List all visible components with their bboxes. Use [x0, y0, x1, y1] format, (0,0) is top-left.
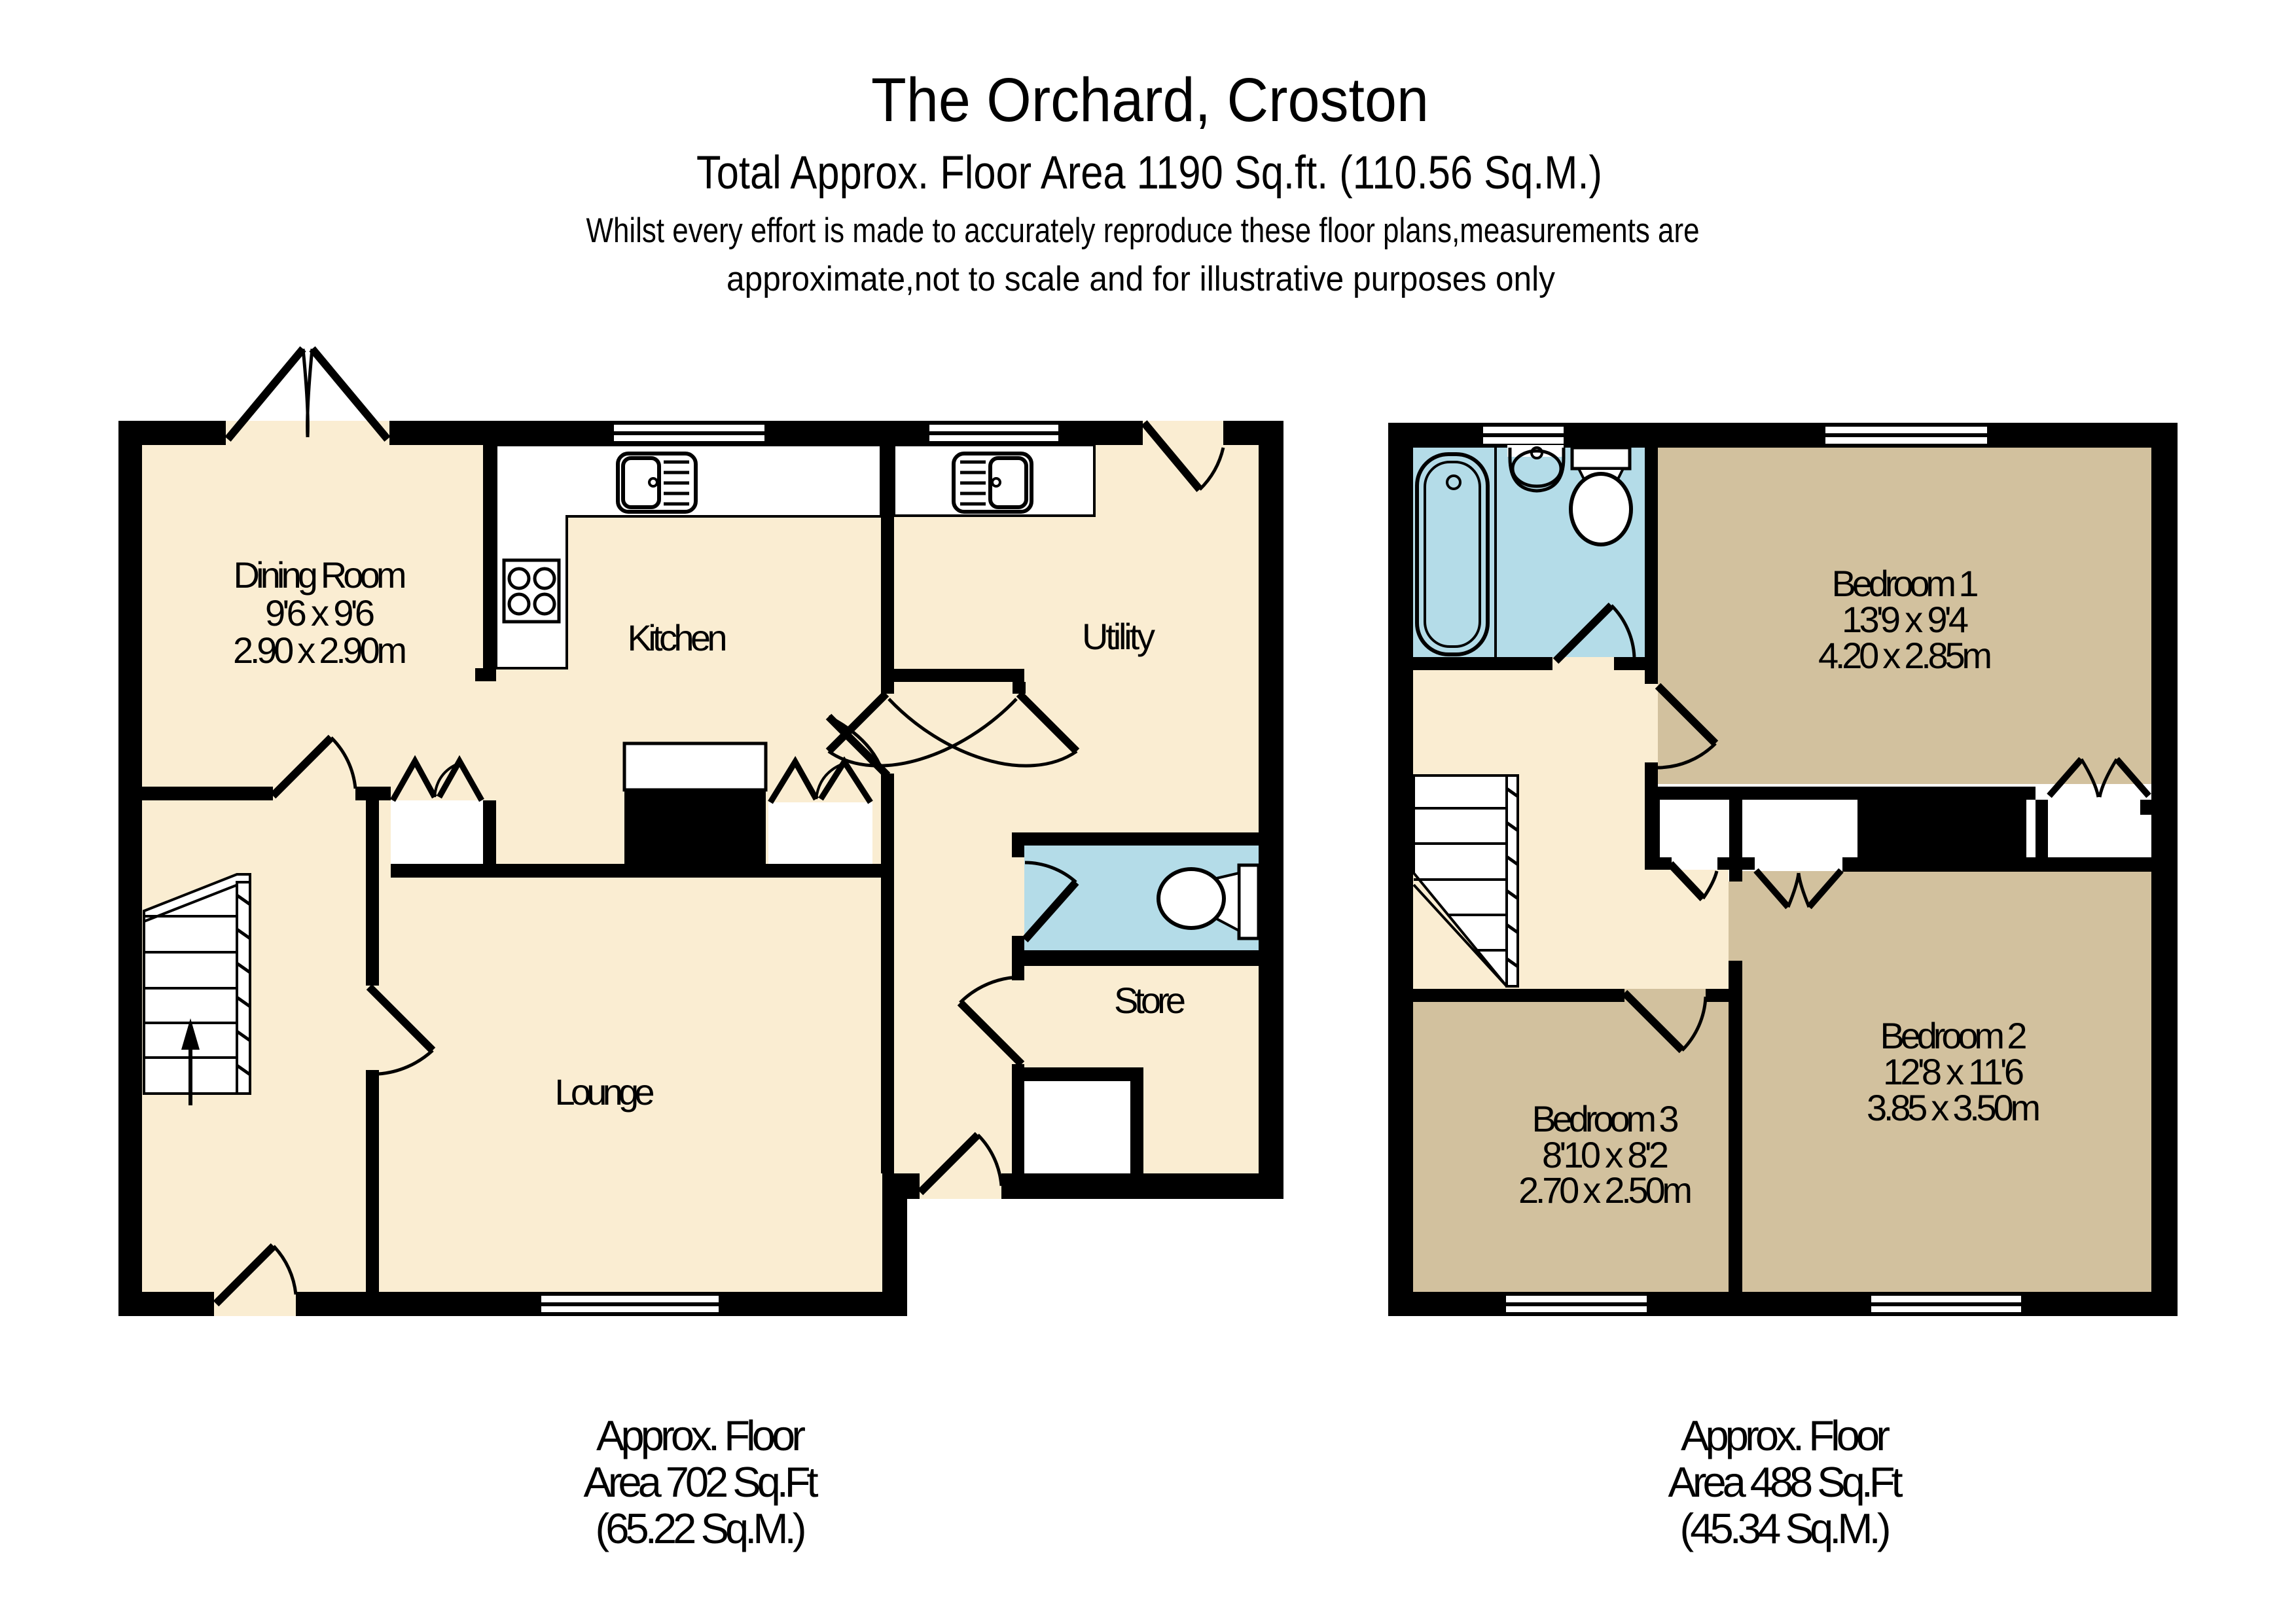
svg-text:12'8 x 11'6: 12'8 x 11'6	[1883, 1051, 2024, 1092]
svg-text:Lounge: Lounge	[555, 1071, 655, 1113]
svg-text:Bedroom 3: Bedroom 3	[1532, 1098, 1679, 1139]
svg-text:Utility: Utility	[1082, 616, 1155, 657]
svg-text:Whilst every effort is made to: Whilst every effort is made to accuratel…	[586, 211, 1700, 250]
svg-text:Dining Room: Dining Room	[234, 554, 407, 596]
svg-text:(45.34 Sq.M.): (45.34 Sq.M.)	[1680, 1505, 1892, 1552]
svg-text:Area 702 Sq.Ft: Area 702 Sq.Ft	[584, 1458, 819, 1506]
svg-text:Approx. Floor: Approx. Floor	[1681, 1412, 1890, 1459]
svg-text:2.70 x 2.50m: 2.70 x 2.50m	[1518, 1169, 1693, 1211]
svg-text:13'9 x 9'4: 13'9 x 9'4	[1842, 599, 1969, 640]
svg-text:Bedroom 1: Bedroom 1	[1832, 563, 1979, 604]
svg-text:Kitchen: Kitchen	[628, 617, 728, 658]
svg-text:Approx. Floor: Approx. Floor	[596, 1412, 806, 1459]
svg-text:approximate,not to scale and f: approximate,not to scale and for illustr…	[726, 260, 1555, 298]
svg-text:Store: Store	[1114, 980, 1186, 1021]
svg-text:Total Approx. Floor Area 1190: Total Approx. Floor Area 1190 Sq.ft. (11…	[696, 147, 1602, 199]
svg-text:4.20 x 2.85m: 4.20 x 2.85m	[1818, 635, 1992, 676]
svg-text:9'6 x 9'6: 9'6 x 9'6	[265, 592, 375, 633]
svg-text:(65.22 Sq.M.): (65.22 Sq.M.)	[596, 1505, 807, 1552]
svg-text:The Orchard, Croston: The Orchard, Croston	[871, 65, 1429, 135]
svg-text:2.90 x 2.90m: 2.90 x 2.90m	[233, 630, 407, 671]
svg-text:3.85 x 3.50m: 3.85 x 3.50m	[1867, 1087, 2041, 1128]
svg-text:Area 488 Sq.Ft: Area 488 Sq.Ft	[1668, 1458, 1903, 1506]
svg-text:Bedroom 2: Bedroom 2	[1880, 1015, 2028, 1056]
